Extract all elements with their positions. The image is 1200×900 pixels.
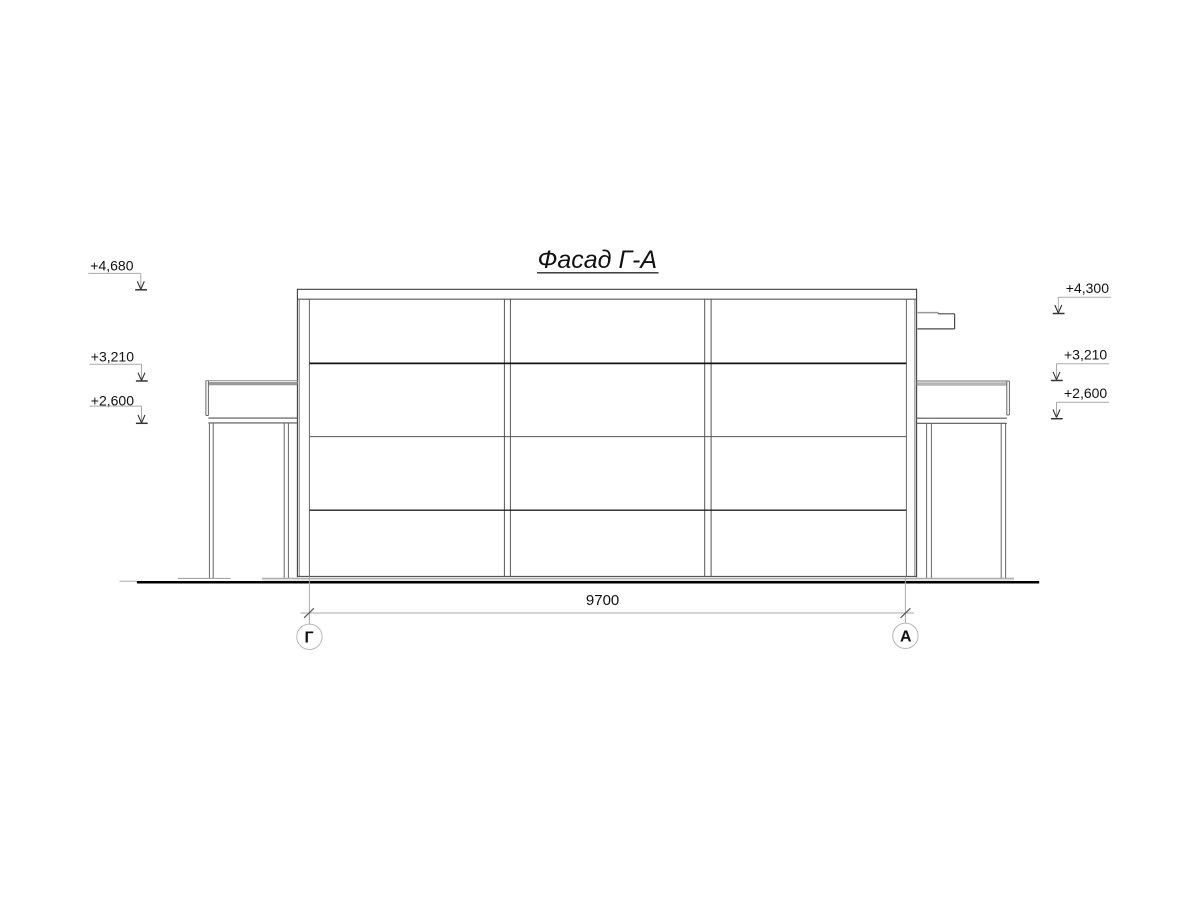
svg-text:9700: 9700 xyxy=(586,592,619,609)
svg-text:+3,210: +3,210 xyxy=(1064,347,1107,363)
svg-text:+3,210: +3,210 xyxy=(91,349,134,365)
svg-text:+4,300: +4,300 xyxy=(1066,280,1109,296)
svg-text:+4,680: +4,680 xyxy=(90,258,133,274)
svg-text:А: А xyxy=(900,629,912,646)
svg-text:Г: Г xyxy=(305,630,314,647)
svg-text:Фасад Г-А: Фасад Г-А xyxy=(538,246,658,274)
svg-text:+2,600: +2,600 xyxy=(1064,385,1107,401)
